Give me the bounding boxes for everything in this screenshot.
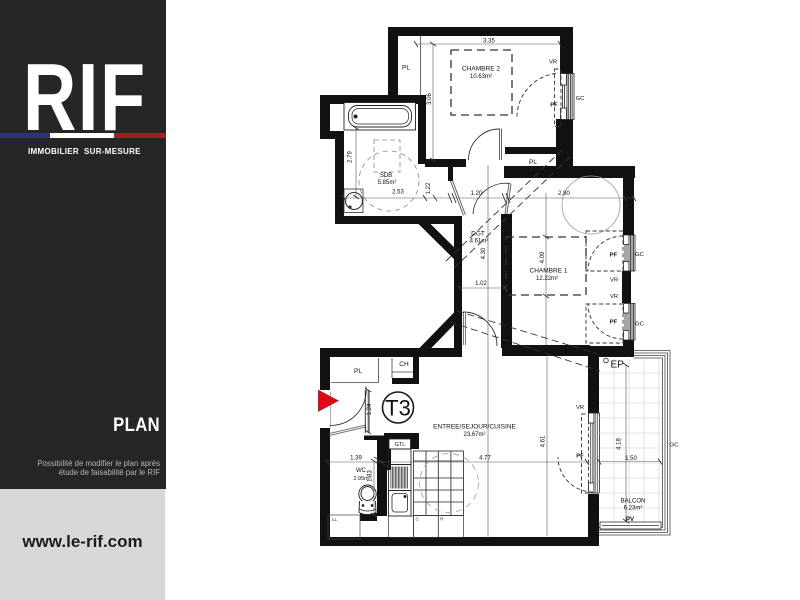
svg-text:C: C bbox=[416, 517, 420, 522]
svg-text:4.77: 4.77 bbox=[479, 456, 491, 462]
svg-text:1.50: 1.50 bbox=[625, 456, 637, 462]
svg-text:CHAMBRE 1: CHAMBRE 1 bbox=[530, 268, 568, 275]
svg-text:GC: GC bbox=[670, 443, 679, 449]
svg-text:10.63m²: 10.63m² bbox=[470, 74, 492, 80]
svg-text:SDB: SDB bbox=[380, 173, 392, 179]
svg-text:GC: GC bbox=[635, 252, 644, 258]
svg-text:R: R bbox=[440, 517, 444, 522]
svg-text:VR: VR bbox=[610, 294, 618, 300]
svg-text:PV: PV bbox=[626, 517, 634, 523]
svg-text:5.85m²: 5.85m² bbox=[378, 180, 397, 186]
svg-text:6.23m²: 6.23m² bbox=[624, 506, 643, 512]
svg-text:CH: CH bbox=[399, 361, 409, 368]
svg-text:4.61m²: 4.61m² bbox=[470, 239, 489, 245]
svg-text:1.83: 1.83 bbox=[368, 470, 374, 482]
svg-text:PF: PF bbox=[576, 454, 584, 460]
svg-text:GC: GC bbox=[576, 96, 585, 102]
svg-text:GTL: GTL bbox=[395, 442, 406, 448]
svg-text:VR: VR bbox=[549, 60, 557, 66]
svg-text:2.79: 2.79 bbox=[348, 151, 354, 163]
svg-text:WC: WC bbox=[356, 468, 367, 474]
svg-text:3.35: 3.35 bbox=[483, 39, 495, 45]
svg-text:VR: VR bbox=[576, 405, 584, 411]
svg-text:PF: PF bbox=[610, 253, 618, 259]
svg-text:1.39: 1.39 bbox=[350, 456, 362, 462]
svg-text:1.22: 1.22 bbox=[426, 182, 432, 194]
svg-text:4.61: 4.61 bbox=[541, 435, 547, 447]
svg-text:PL: PL bbox=[529, 159, 537, 166]
svg-text:GC: GC bbox=[635, 322, 644, 328]
svg-text:2.80: 2.80 bbox=[558, 191, 570, 197]
svg-text:VR: VR bbox=[610, 278, 618, 284]
svg-text:PL: PL bbox=[402, 65, 410, 72]
svg-text:LL: LL bbox=[332, 517, 338, 522]
svg-text:EP: EP bbox=[611, 360, 625, 371]
svg-text:23.67m²: 23.67m² bbox=[463, 432, 485, 438]
svg-text:3.06: 3.06 bbox=[427, 93, 433, 105]
svg-text:4.09: 4.09 bbox=[540, 251, 546, 263]
svg-text:PF: PF bbox=[550, 103, 558, 109]
svg-text:T3: T3 bbox=[385, 396, 411, 421]
svg-text:PF: PF bbox=[610, 320, 618, 326]
svg-text:1.20: 1.20 bbox=[471, 191, 483, 197]
svg-text:1.02: 1.02 bbox=[475, 281, 487, 287]
svg-text:1.24: 1.24 bbox=[367, 403, 373, 415]
svg-text:PL: PL bbox=[354, 368, 362, 375]
svg-text:4.18: 4.18 bbox=[617, 438, 623, 450]
svg-text:DGT: DGT bbox=[471, 231, 485, 238]
svg-text:CHAMBRE 2: CHAMBRE 2 bbox=[462, 66, 500, 73]
svg-text:BALCON: BALCON bbox=[621, 499, 646, 505]
svg-text:2.53: 2.53 bbox=[392, 190, 404, 196]
svg-text:4.30: 4.30 bbox=[481, 247, 487, 259]
svg-text:12.22m²: 12.22m² bbox=[536, 276, 558, 282]
svg-text:ENTREE/SEJOUR/CUISINE: ENTREE/SEJOUR/CUISINE bbox=[433, 424, 516, 431]
